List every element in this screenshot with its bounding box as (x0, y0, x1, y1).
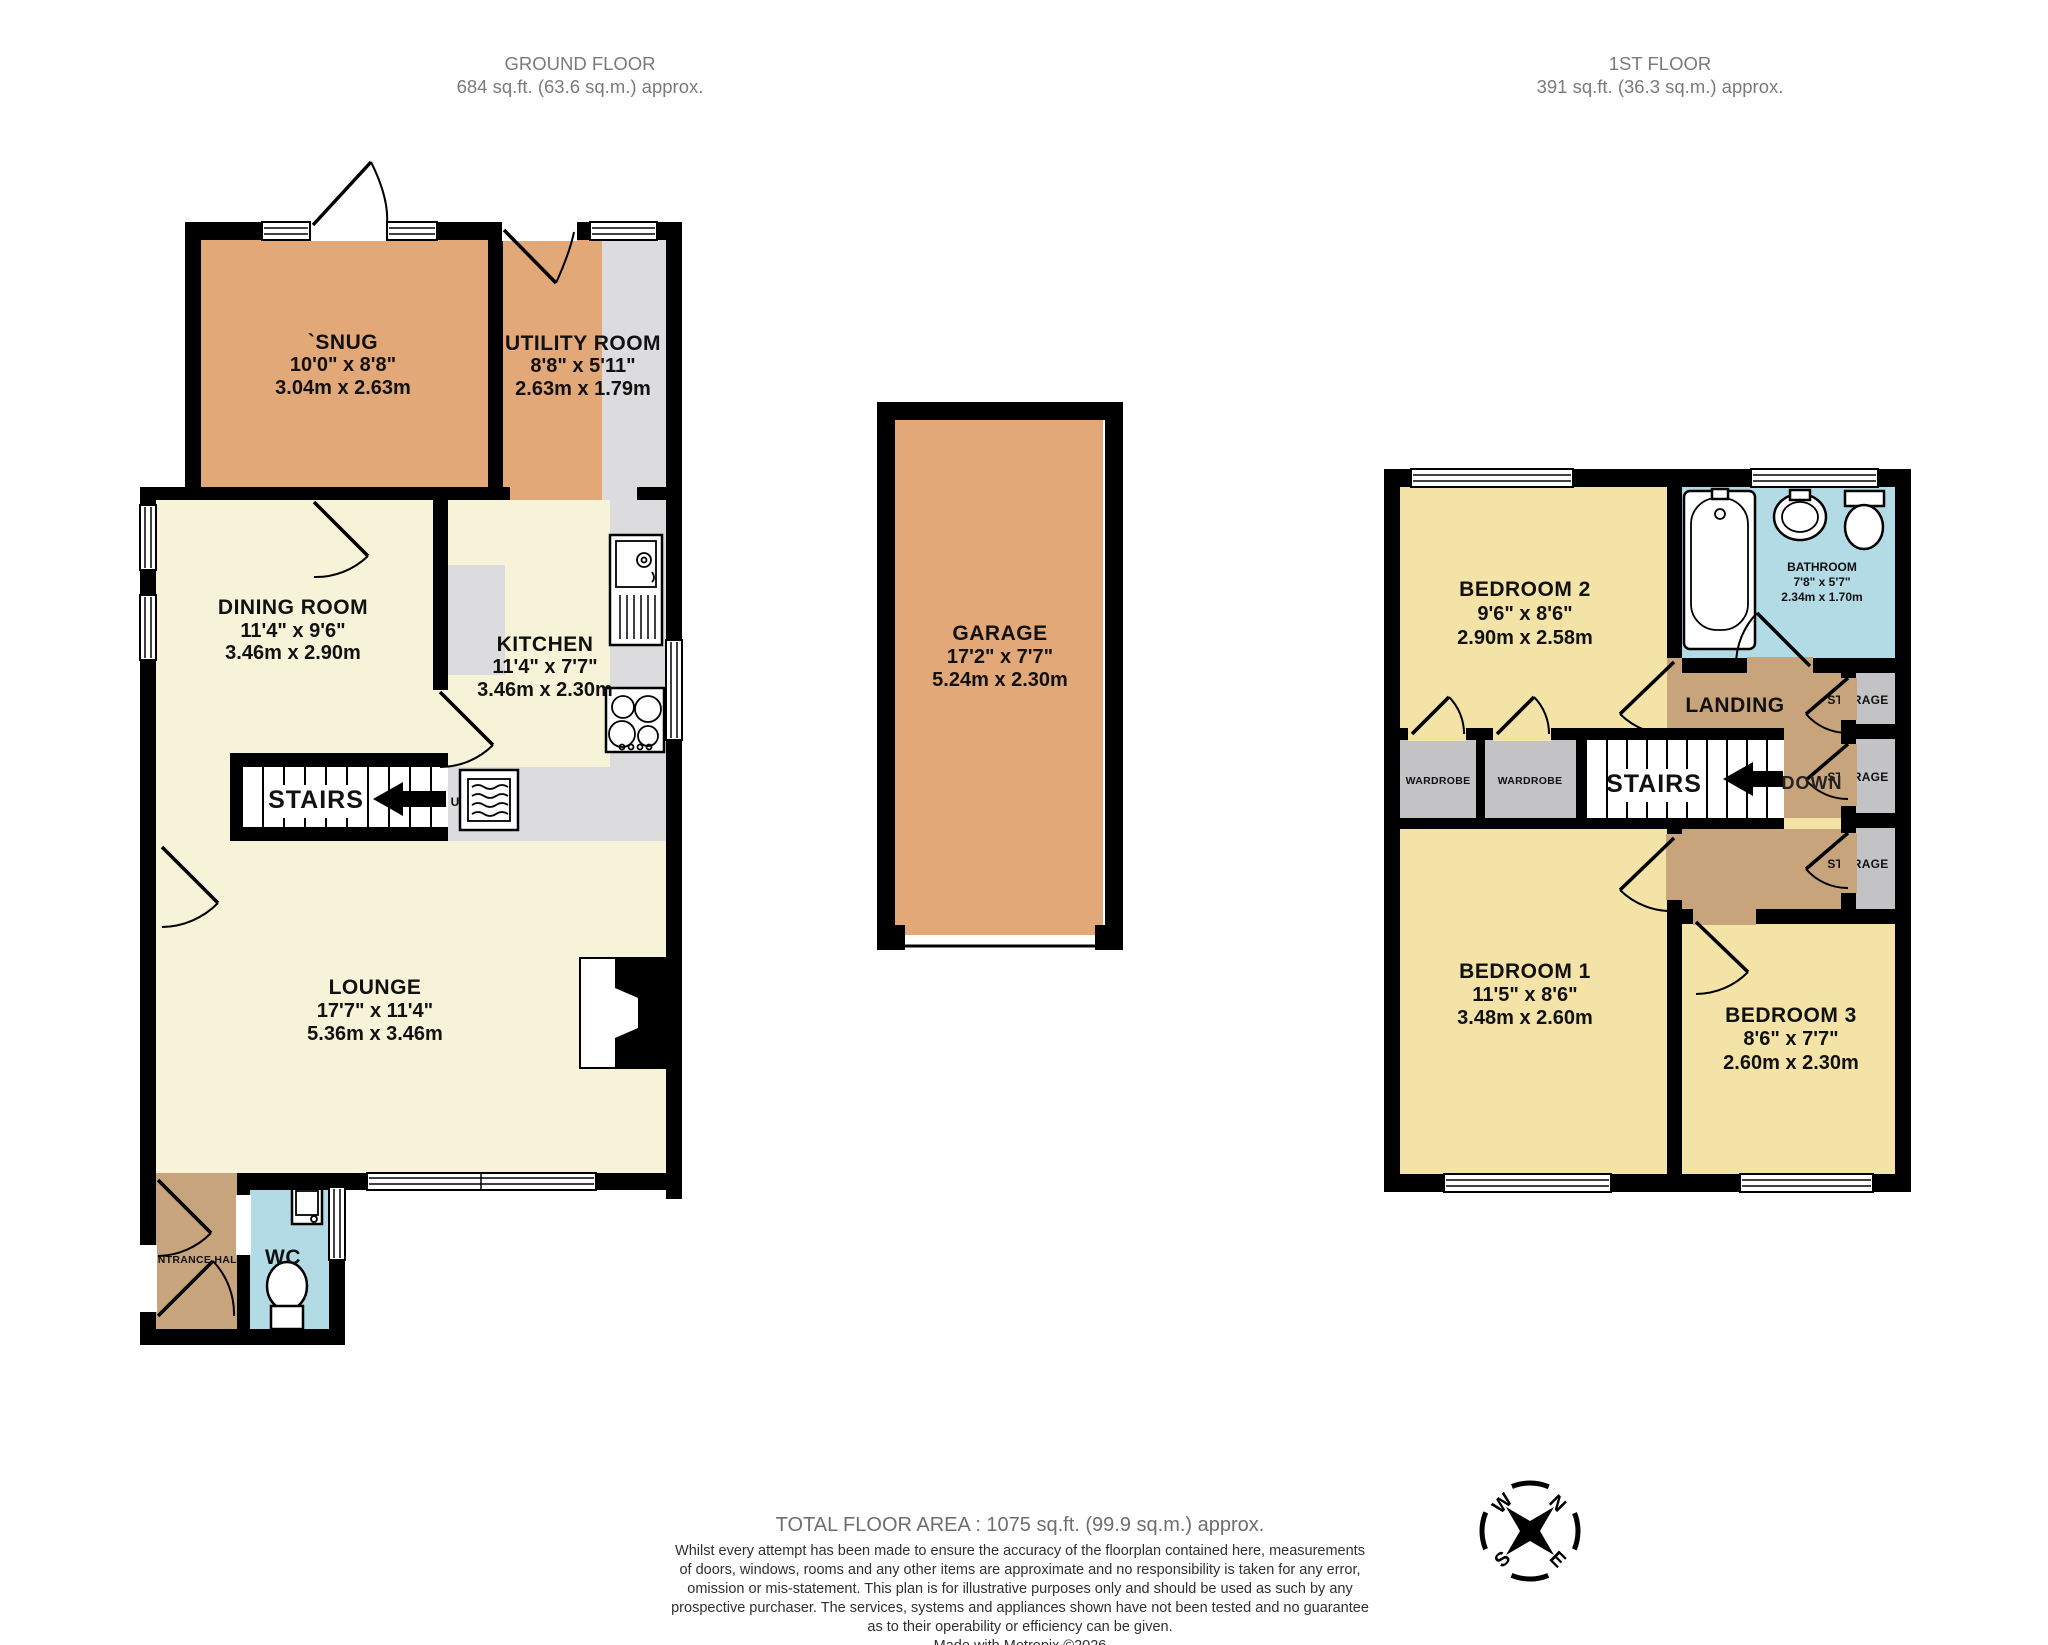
bathroom-imperial: 7'8" x 5'7" (1793, 575, 1850, 589)
snug-window-1 (262, 222, 310, 240)
ground-stairs-label: STAIRS (268, 786, 364, 814)
kitchen-name: KITCHEN (497, 633, 594, 656)
bathroom-window (1751, 469, 1878, 487)
bedroom1-name: BEDROOM 1 (1459, 960, 1591, 983)
dining-metric: 3.46m x 2.90m (225, 642, 361, 664)
wardrobe1-label: WARDROBE (1406, 775, 1471, 787)
stairs-down-arrow-shaft (1753, 771, 1783, 787)
floorplan-page: GROUND FLOOR 684 sq.ft. (63.6 sq.m.) app… (0, 0, 2048, 1645)
disclaimer-line-5: as to their operability or efficiency ca… (320, 1618, 1720, 1637)
lounge-patio-window (367, 1173, 596, 1190)
bedroom3-imperial: 8'6" x 7'7" (1743, 1028, 1838, 1050)
bedroom1-imperial: 11'5" x 8'6" (1472, 984, 1577, 1006)
snug-name: `SNUG (308, 331, 378, 354)
wc-door-opening (236, 1195, 251, 1255)
utility-name: UTILITY ROOM (505, 332, 661, 355)
disclaimer-line-1: Whilst every attempt has been made to en… (320, 1542, 1720, 1561)
first-stairs-label: STAIRS (1606, 770, 1702, 798)
storage3-label: STORAGE (1827, 857, 1888, 871)
snug-window-2 (387, 222, 437, 240)
utility-imperial: 8'8" x 5'11" (530, 355, 635, 377)
wc-window (329, 1187, 345, 1260)
dining-window-2 (140, 595, 156, 660)
landing-label: LANDING (1685, 694, 1784, 717)
kitchen-sink-icon (610, 535, 662, 645)
dining-window-1 (140, 505, 156, 570)
storage1-label: STORAGE (1827, 693, 1888, 707)
storage-fill (1856, 673, 1895, 909)
kitchen-imperial: 11'4" x 7'7" (492, 656, 597, 678)
snug-imperial: 10'0" x 8'8" (290, 354, 396, 376)
oven-icon (460, 770, 518, 830)
lounge-metric: 5.36m x 3.46m (307, 1023, 443, 1045)
stairs-up-arrow-shaft (403, 791, 446, 807)
lounge-imperial: 17'7" x 11'4" (317, 1000, 433, 1022)
utility-metric: 2.63m x 1.79m (515, 378, 651, 400)
bedroom2-metric: 2.90m x 2.58m (1457, 627, 1593, 649)
bedroom1-metric: 3.48m x 2.60m (1457, 1007, 1593, 1029)
storage3-door-opening (1840, 833, 1857, 893)
dining-imperial: 11'4" x 9'6" (240, 620, 345, 642)
bedroom3-name: BEDROOM 3 (1725, 1004, 1857, 1027)
snug-door-opening (310, 221, 387, 241)
bathroom-name: BATHROOM (1787, 560, 1857, 574)
wc-toilet-icon (267, 1262, 307, 1329)
storage2-door-opening (1840, 744, 1857, 806)
bath-icon (1684, 489, 1755, 649)
garage-imperial: 17'2" x 7'7" (947, 646, 1053, 668)
hob-icon (606, 688, 664, 752)
bedroom3-metric: 2.60m x 2.30m (1723, 1052, 1859, 1074)
ground-floor-plan: ENTRANCE HALL . (139, 162, 682, 1345)
wc-label: WC (265, 1246, 301, 1269)
garage-name: GARAGE (952, 622, 1047, 645)
kitchen-window (666, 640, 682, 740)
bathroom-metric: 2.34m x 1.70m (1781, 590, 1862, 604)
utility-window (590, 222, 657, 240)
stairs-down-label: DOWN (1782, 773, 1843, 793)
stairs-up-label: U (451, 795, 460, 809)
garage-plan: GARAGE 17'2" x 7'7" 5.24m x 2.30m (877, 402, 1123, 950)
kitchen-metric: 3.46m x 2.30m (477, 679, 613, 701)
disclaimer-line-4: prospective purchaser. The services, sys… (320, 1599, 1720, 1618)
garage-metric: 5.24m x 2.30m (932, 669, 1068, 691)
bathroom-toilet-icon (1845, 491, 1884, 549)
lounge-name: LOUNGE (329, 976, 422, 999)
snug-metric: 3.04m x 2.63m (275, 377, 411, 399)
bedroom2-imperial: 9'6" x 8'6" (1477, 603, 1572, 625)
bedroom2-window (1411, 469, 1573, 487)
dining-name: DINING ROOM (218, 596, 368, 619)
bedroom3-window (1740, 1174, 1873, 1192)
bedroom3-door-opening (1693, 908, 1756, 925)
bedroom1-window (1444, 1174, 1611, 1192)
front-door-opening (139, 1245, 157, 1312)
disclaimer-line-2: of doors, windows, rooms and any other i… (320, 1561, 1720, 1580)
bedroom2-name: BEDROOM 2 (1459, 578, 1591, 601)
wardrobe2-label: WARDROBE (1498, 775, 1563, 787)
floorplan-drawing: ENTRANCE HALL . (0, 0, 2048, 1645)
first-floor-plan: STORAGE STORAGE STORAGE (1384, 469, 1911, 1192)
wc-sink-icon (292, 1186, 322, 1224)
footer: TOTAL FLOOR AREA : 1075 sq.ft. (99.9 sq.… (320, 1514, 1720, 1645)
fireplace (580, 958, 666, 1068)
disclaimer-line-3: omission or mis-statement. This plan is … (320, 1580, 1720, 1599)
metropix-credit: Made with Metropix ©2026 (320, 1637, 1720, 1645)
total-floor-area: TOTAL FLOOR AREA : 1075 sq.ft. (99.9 sq.… (320, 1514, 1720, 1537)
